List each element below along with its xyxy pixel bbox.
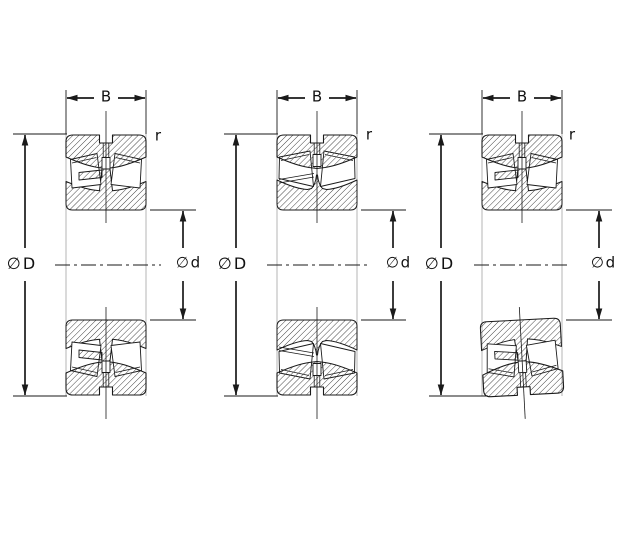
width-dim-label-3: B [517, 90, 527, 105]
bore-diameter-label-3: ∅ d [591, 256, 615, 271]
outer-diameter-label-1: ∅ D [7, 256, 35, 272]
bearing-view-3 [429, 90, 612, 419]
width-dim-label-1: B [101, 90, 111, 105]
corner-radius-label-1: r [155, 129, 161, 144]
bearing-dimension-diagram: B r ∅ D ∅ d B r ∅ D ∅ d B r ∅ D ∅ d [0, 0, 618, 544]
corner-radius-label-3: r [569, 128, 575, 143]
diagram-linework [0, 0, 618, 544]
corner-radius-label-2: r [366, 128, 372, 143]
width-dim-label-2: B [312, 90, 322, 105]
bore-diameter-label-2: ∅ d [386, 256, 410, 271]
bearing-view-2 [224, 90, 406, 419]
bearing-view-1 [13, 90, 196, 419]
outer-diameter-label-2: ∅ D [218, 256, 246, 272]
outer-diameter-label-3: ∅ D [425, 256, 453, 272]
bore-diameter-label-1: ∅ d [176, 256, 200, 271]
generated-geometry [13, 90, 612, 419]
